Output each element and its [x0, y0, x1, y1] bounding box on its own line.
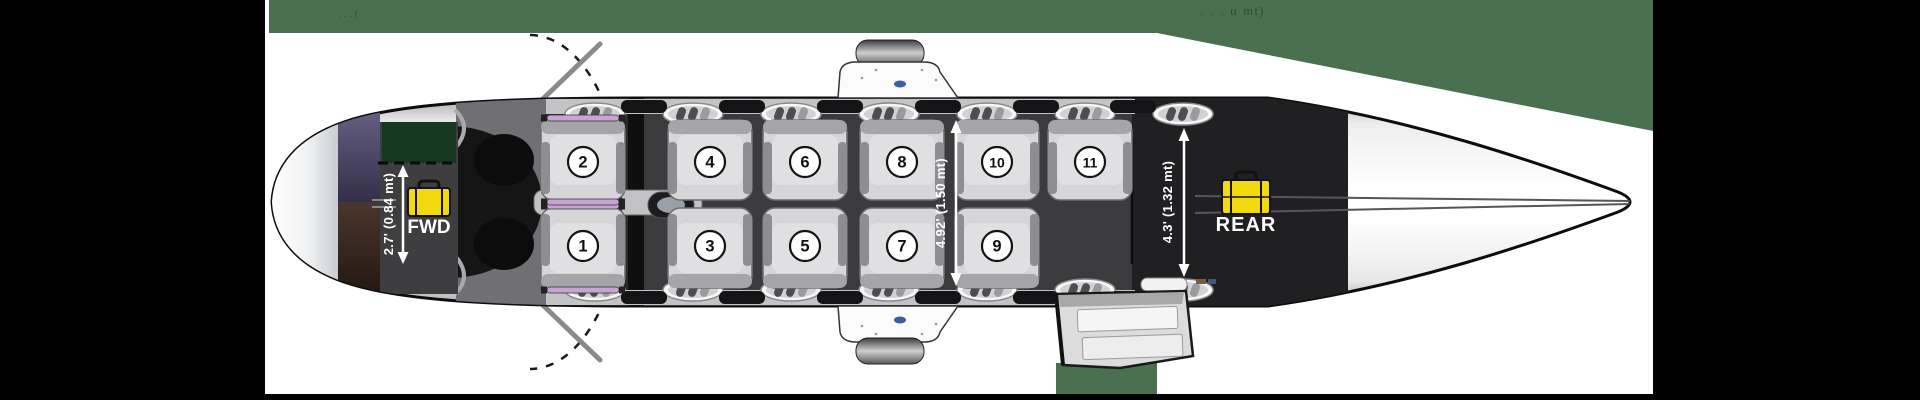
- armrest: [668, 142, 677, 194]
- seat-back: [860, 120, 944, 134]
- seat-back: [541, 274, 625, 288]
- seat-trim-strip: [547, 199, 619, 205]
- armrest: [1123, 142, 1132, 194]
- armrest: [1030, 214, 1039, 266]
- seat-number: 11: [1083, 155, 1098, 171]
- airstair-door: [1056, 291, 1193, 368]
- seat-back: [763, 120, 847, 134]
- seat-5: 5: [763, 208, 847, 288]
- fwd-label: FWD: [407, 217, 450, 238]
- header-left-fragment: . . . ( .: [338, 9, 364, 20]
- armrest: [860, 142, 869, 194]
- tire-bottom: [856, 338, 924, 364]
- seat-number: 6: [800, 154, 809, 172]
- seat-number: 9: [992, 238, 1001, 256]
- seat-3: 3: [668, 208, 752, 288]
- header-right-fragment: . . . u mt): [1200, 6, 1265, 18]
- armrest: [541, 214, 550, 266]
- seat-11: 11: [1048, 120, 1132, 200]
- rear-label: REAR: [1216, 214, 1277, 236]
- seat-7: 7: [860, 208, 944, 288]
- window-frame-tab: [621, 100, 667, 113]
- aircraft-layout-diagram: . . . ( . . . . u mt): [0, 0, 1920, 400]
- armrest: [743, 214, 752, 266]
- cabin-window-cluster: [1153, 103, 1213, 125]
- armrest: [616, 142, 625, 194]
- seat-6: 6: [763, 120, 847, 200]
- window-frame-tab: [1013, 291, 1059, 304]
- seat-trim-strip: [547, 287, 619, 293]
- window-frame-tab: [915, 100, 961, 113]
- window-frame-tab: [1110, 100, 1156, 113]
- armrest: [838, 214, 847, 266]
- seat-back: [668, 274, 752, 288]
- armrest: [616, 214, 625, 266]
- seat-trim-strip: [547, 115, 619, 121]
- window-frame-tab: [1013, 100, 1059, 113]
- rear-dimension-label: 4.3' (1.32 mt): [1160, 161, 1175, 243]
- seat-back: [860, 274, 944, 288]
- seat-back: [541, 120, 625, 134]
- seat-back: [955, 274, 1039, 288]
- armrest: [1048, 142, 1057, 194]
- seat-number: 10: [989, 155, 1005, 171]
- seat-number: 5: [800, 238, 809, 256]
- fairing-logo-top: [894, 81, 906, 88]
- armrest: [763, 142, 772, 194]
- seat-back: [955, 120, 1039, 134]
- sill-speck-brown: [1196, 279, 1206, 284]
- pilot-seat: [474, 134, 534, 186]
- seat-8: 8: [860, 120, 944, 200]
- copilot-seat: [474, 218, 534, 270]
- window-frame-tab: [915, 291, 961, 304]
- seat-number: 4: [705, 154, 715, 172]
- sill-speck-blue: [1208, 279, 1216, 284]
- window-frame-tab: [719, 291, 765, 304]
- fwd-dimension-label: 2.7' (0.84 mt): [381, 173, 396, 255]
- seat-number: 7: [897, 238, 906, 256]
- window-frame-tab: [817, 100, 863, 113]
- armrest: [860, 214, 869, 266]
- window-frame-tab: [817, 291, 863, 304]
- seat-number: 1: [578, 238, 587, 256]
- fwd-bay-divider: [382, 122, 456, 163]
- seat-number: 2: [578, 154, 587, 172]
- seat-back: [668, 120, 752, 134]
- armrest: [541, 142, 550, 194]
- rear-door-sill: [1141, 278, 1187, 291]
- window-frame-tab: [621, 291, 667, 304]
- bottom-black-bar: [265, 394, 1653, 400]
- seat-number: 3: [705, 238, 714, 256]
- seat-number: 8: [897, 154, 906, 172]
- seat-4: 4: [668, 120, 752, 200]
- fairing-logo-bottom: [894, 317, 906, 324]
- seat-back: [763, 274, 847, 288]
- diagram-canvas: . . . ( . . . . u mt): [0, 0, 1920, 400]
- right-margin: [1653, 0, 1920, 400]
- armrest: [668, 214, 677, 266]
- seat-10: 10: [955, 120, 1039, 200]
- seat-2: 2: [541, 115, 625, 206]
- armrest: [743, 142, 752, 194]
- window-frame-tab: [719, 100, 765, 113]
- seat-9: 9: [955, 208, 1039, 288]
- left-margin: [0, 0, 265, 400]
- seat-1: 1: [541, 203, 625, 294]
- armrest: [1030, 142, 1039, 194]
- seat-back: [1048, 120, 1132, 134]
- cabin-dimension-label: 4.92' (1.50 mt): [933, 158, 948, 248]
- armrest: [763, 214, 772, 266]
- armrest: [838, 142, 847, 194]
